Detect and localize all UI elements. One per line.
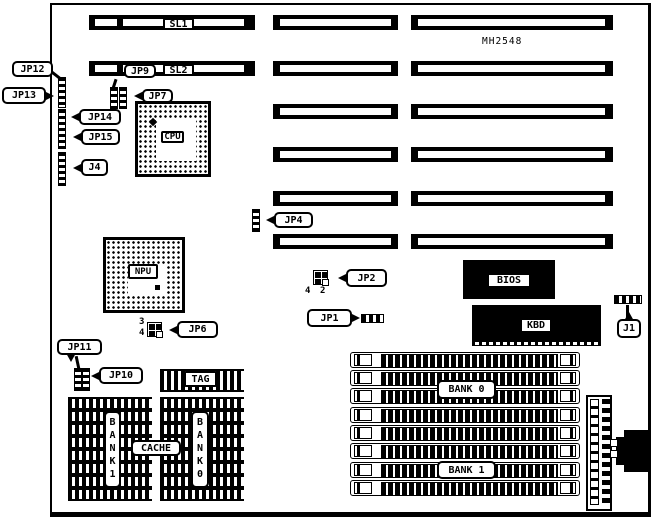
label-sram-bank0: BANK0 <box>191 411 209 488</box>
slot-opening <box>95 19 117 26</box>
label-jp11: JP11 <box>57 339 102 355</box>
label-jp10: JP10 <box>99 367 143 384</box>
sram-chip-row <box>68 397 152 410</box>
label-bios: BIOS <box>487 273 531 288</box>
label-jp15: JP15 <box>81 129 120 145</box>
isa-slot-row5-mid <box>273 191 398 206</box>
slot-opening <box>280 65 391 72</box>
jp6-pin4-number: 4 <box>139 328 144 338</box>
isa-slot-row1-mid <box>273 15 398 30</box>
slot-opening <box>418 19 605 26</box>
jumper-block-jp14-jp15 <box>58 109 66 149</box>
jumper-block-jp12-jp13 <box>58 77 66 108</box>
label-cache: CACHE <box>131 440 181 456</box>
label-jp13: JP13 <box>2 87 46 104</box>
slot-opening <box>418 195 605 202</box>
label-kbd: KBD <box>520 318 552 333</box>
isa-slot-row2-right <box>411 61 613 76</box>
board-model-text: MH2548 <box>482 36 522 47</box>
label-simm-bank0: BANK 0 <box>437 380 496 399</box>
slot-opening <box>418 108 605 115</box>
jumper-block-j1 <box>614 295 642 304</box>
isa-slot-row6-right <box>411 234 613 249</box>
jp2-pin4-number: 4 <box>305 286 310 296</box>
label-sram-bank1: BANK1 <box>104 411 121 488</box>
simm-socket <box>350 352 580 368</box>
label-cpu: CPU <box>161 131 184 143</box>
label-jp6: JP6 <box>177 321 218 338</box>
label-j1: J1 <box>617 319 641 338</box>
label-simm-bank1: BANK 1 <box>437 461 496 479</box>
sram-chip-row <box>68 488 152 501</box>
simm-socket <box>350 425 580 441</box>
isa-slot-row2-mid <box>273 61 398 76</box>
sram-chip-row <box>160 488 244 501</box>
label-npu: NPU <box>128 264 158 279</box>
isa-slot-row3-mid <box>273 104 398 119</box>
label-sl1: SL1 <box>163 18 194 30</box>
jumper-block-jp11 <box>74 368 82 391</box>
isa-slot-row4-right <box>411 147 613 162</box>
jumper-block-jp2 <box>313 270 328 285</box>
simm-socket <box>350 480 580 496</box>
jumper-block-jp1 <box>361 314 384 323</box>
jumper-block-jp10 <box>82 368 90 391</box>
label-jp12: JP12 <box>12 61 53 77</box>
jumper-block-j4 <box>58 152 66 186</box>
isa-slot-row4-mid <box>273 147 398 162</box>
sram-chip-row <box>160 397 244 410</box>
slot-opening <box>280 238 391 245</box>
jumper-block-jp4 <box>252 209 260 232</box>
label-jp9: JP9 <box>124 64 156 78</box>
slot-opening <box>280 19 391 26</box>
power-connector-housing <box>590 399 599 505</box>
npu-pin-marker <box>155 285 160 290</box>
slot-opening <box>280 195 391 202</box>
label-jp14: JP14 <box>79 109 121 125</box>
kbd-chip-pins <box>475 342 598 345</box>
label-j4: J4 <box>81 159 108 176</box>
label-tag: TAG <box>184 371 217 387</box>
label-jp1: JP1 <box>307 309 352 327</box>
slot-opening <box>95 65 117 72</box>
power-connector <box>586 395 612 511</box>
din-mount-pad <box>610 450 618 458</box>
isa-slot-row3-right <box>411 104 613 119</box>
isa-slot-row6-mid <box>273 234 398 249</box>
din-mount-pad <box>610 439 618 447</box>
keyboard-din-connector <box>624 430 651 472</box>
motherboard-diagram: MH2548 SL1 SL2 <box>0 0 652 520</box>
label-jp7: JP7 <box>142 89 173 103</box>
jp6-pin3-number: 3 <box>139 317 144 327</box>
simm-socket <box>350 443 580 459</box>
slot-opening <box>280 151 391 158</box>
jp2-pin2-number: 2 <box>320 286 325 296</box>
power-connector-pins <box>602 399 610 505</box>
label-jp2: JP2 <box>346 269 387 287</box>
label-jp4: JP4 <box>274 212 313 228</box>
simm-socket <box>350 407 580 423</box>
slot-opening <box>418 238 605 245</box>
slot-opening <box>418 151 605 158</box>
jumper-block-jp9 <box>110 87 118 109</box>
slot-opening <box>418 65 605 72</box>
isa-slot-row5-right <box>411 191 613 206</box>
jumper-block-jp7 <box>119 87 127 109</box>
slot-opening <box>280 108 391 115</box>
jumper-block-jp6 <box>147 322 162 337</box>
label-sl2: SL2 <box>163 64 194 76</box>
isa-slot-row1-right <box>411 15 613 30</box>
